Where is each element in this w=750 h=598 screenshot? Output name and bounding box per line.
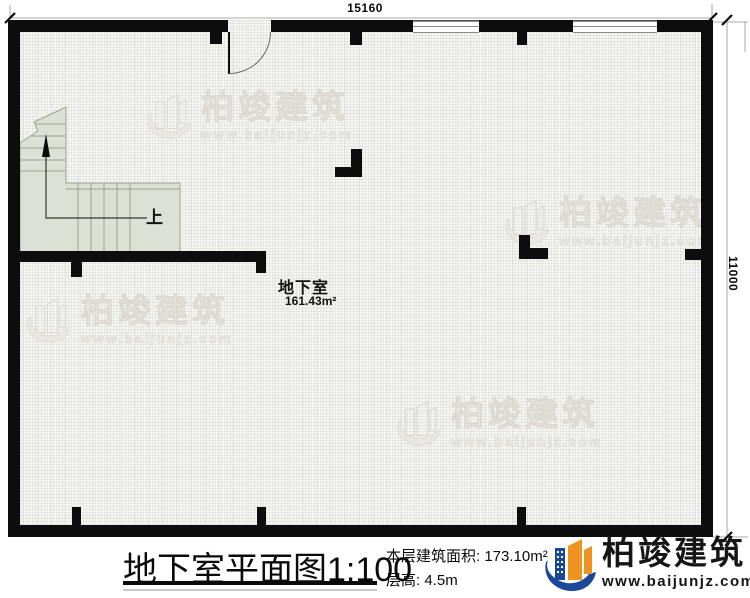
watermark-url: www.baijunjz.com	[559, 233, 711, 248]
wall-right	[701, 20, 713, 537]
wall-interior	[8, 251, 258, 262]
room-area-label: 161.43m²	[285, 294, 336, 308]
window	[413, 20, 479, 33]
watermark-name: 柏竣建筑	[451, 397, 603, 430]
watermark-url: www.baijunjz.com	[451, 434, 603, 449]
dimension-right: 11000	[726, 256, 740, 291]
floor-height-info: 层高: 4.5m	[386, 569, 458, 590]
wall-pier	[517, 32, 527, 45]
wall-pier	[517, 507, 526, 525]
l-column	[519, 248, 548, 259]
watermark-logo-icon	[145, 90, 193, 144]
window	[573, 20, 657, 33]
wall-top-segment	[657, 20, 713, 32]
wall-interior-end	[256, 251, 266, 273]
dimension-top: 15160	[330, 1, 400, 15]
watermark-name: 柏竣建筑	[559, 196, 711, 229]
floor-height-label: 层高:	[386, 572, 420, 589]
wall-pier	[350, 32, 362, 45]
watermark-logo-icon	[395, 397, 443, 451]
stair-up-label: 上	[146, 203, 163, 228]
wall-top-segment	[8, 20, 228, 32]
brand-logo-icon	[542, 536, 598, 594]
watermark: 柏竣建筑 www.baijunjz.com	[25, 294, 233, 348]
floor-area-label: 本层建筑面积:	[386, 548, 480, 565]
watermark: 柏竣建筑 www.baijunjz.com	[395, 397, 603, 451]
floor-area-info: 本层建筑面积: 173.10m²	[386, 545, 548, 566]
brand-logo: 柏竣建筑 www.baijunjz.com	[542, 536, 750, 594]
wall-pier	[257, 507, 266, 525]
watermark-url: www.baijunjz.com	[81, 331, 233, 346]
watermark: 柏竣建筑 www.baijunjz.com	[503, 196, 711, 250]
watermark: 柏竣建筑 www.baijunjz.com	[145, 90, 353, 144]
floor-height-value: 4.5m	[424, 572, 457, 589]
watermark-logo-icon	[25, 294, 73, 348]
wall-pier	[685, 249, 701, 260]
wall-pier	[71, 262, 82, 277]
floorplan-canvas: 柏竣建筑 www.baijunjz.com 柏竣建筑 www.baijunjz.…	[0, 0, 750, 598]
wall-top-segment	[479, 20, 573, 32]
wall-left	[8, 20, 20, 537]
wall-pier	[72, 507, 81, 525]
wall-top-segment	[271, 20, 413, 32]
watermark-name: 柏竣建筑	[201, 90, 353, 123]
title-underline	[123, 581, 377, 585]
brand-name: 柏竣建筑	[602, 536, 750, 569]
floor-area-value: 173.10m²	[484, 548, 547, 565]
l-column	[335, 167, 362, 177]
watermark-url: www.baijunjz.com	[201, 127, 353, 142]
brand-url: www.baijunjz.com	[602, 573, 750, 590]
title-underline-thin	[123, 589, 377, 591]
wall-pier	[210, 32, 222, 44]
watermark-name: 柏竣建筑	[81, 294, 233, 327]
floor-area	[8, 20, 713, 537]
